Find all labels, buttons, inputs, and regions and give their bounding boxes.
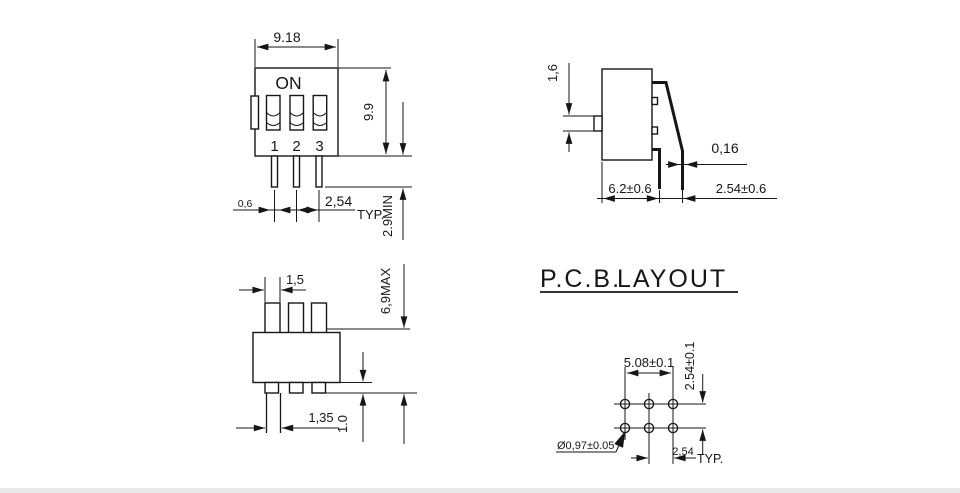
switch-body-bottom	[253, 333, 340, 383]
pin-2	[294, 156, 300, 187]
position-3-label: 3	[315, 138, 323, 155]
lead-offset-label: 2.54±0.6	[716, 181, 767, 196]
col-pitch-label: 2,54	[672, 446, 693, 458]
pcb-layout-title-pcb: P.C.B.	[540, 265, 621, 293]
switch-body-side	[602, 69, 652, 160]
pcb-layout-view: P.C.B. LAYOUT 5.08±0.1 2.54±0.1 2,54 TYP…	[540, 265, 738, 466]
actuator-extension-lines	[563, 116, 594, 131]
actuator-post-1	[265, 303, 280, 333]
lead-notch-upper	[652, 98, 658, 105]
actuator-post-3	[312, 303, 327, 333]
technical-drawing-sheet: 9.18 ON 1 2 3 9.9 2.9MIN	[0, 0, 960, 488]
lead-notch-lower	[652, 127, 658, 134]
pitch-typ-label: TYP.	[357, 207, 384, 222]
span-label: 5.08±0.1	[624, 355, 675, 370]
position-2-label: 2	[292, 138, 300, 155]
slide-slots	[267, 96, 327, 131]
hole-diameter-label: Ø0,97±0.05	[557, 440, 614, 452]
actuator-post-2	[289, 303, 304, 333]
height-dimension-label: 9.9	[361, 103, 376, 121]
width-dimension-label: 9.18	[273, 29, 300, 45]
bottom-view: 1,5 6,9MAX 1.0 1,35	[236, 264, 417, 444]
standoff-tab-1	[265, 383, 279, 394]
pin-1	[272, 156, 278, 187]
front-view: 9.18 ON 1 2 3 9.9 2.9MIN	[233, 29, 412, 240]
hole-diameter-leader-arrow	[616, 433, 625, 453]
side-view: 1,6 0,16 6.2±0.6 2.54±0.6	[545, 63, 777, 203]
standoff-tab-2	[290, 383, 304, 394]
pin-width-label: 1,35	[308, 410, 333, 425]
slot-2	[290, 96, 304, 131]
dip-switch-drawing: 9.18 ON 1 2 3 9.9 2.9MIN	[0, 0, 960, 488]
actuator-height-label: 1,6	[545, 64, 560, 82]
pitch-dimension-label: 2,54	[325, 193, 352, 209]
standoff-tab-3	[312, 383, 326, 394]
body-depth-label: 6.2±0.6	[608, 181, 651, 196]
standoff-label: 1.0	[335, 415, 350, 433]
slot-3	[313, 96, 327, 131]
pcb-layout-title-layout: LAYOUT	[617, 265, 727, 293]
lead-thickness-label: 0,16	[711, 140, 738, 156]
actuator-width-extension-lines	[265, 277, 280, 302]
on-label: ON	[275, 73, 301, 93]
straight-lead	[652, 150, 660, 190]
actuator-width-label: 1,5	[286, 272, 304, 287]
overall-height-label: 6,9MAX	[378, 268, 393, 315]
row-pitch-label: 2.54±0.1	[683, 342, 697, 391]
col-pitch-typ-label: TYP.	[697, 452, 723, 466]
position-1-label: 1	[270, 138, 278, 155]
slot-1	[267, 96, 281, 131]
pin-width-dimension-label: 0,6	[238, 198, 253, 210]
side-slot-tab	[251, 96, 259, 129]
long-pin	[267, 393, 281, 433]
actuator-side	[594, 116, 602, 131]
pin-3	[316, 156, 322, 187]
